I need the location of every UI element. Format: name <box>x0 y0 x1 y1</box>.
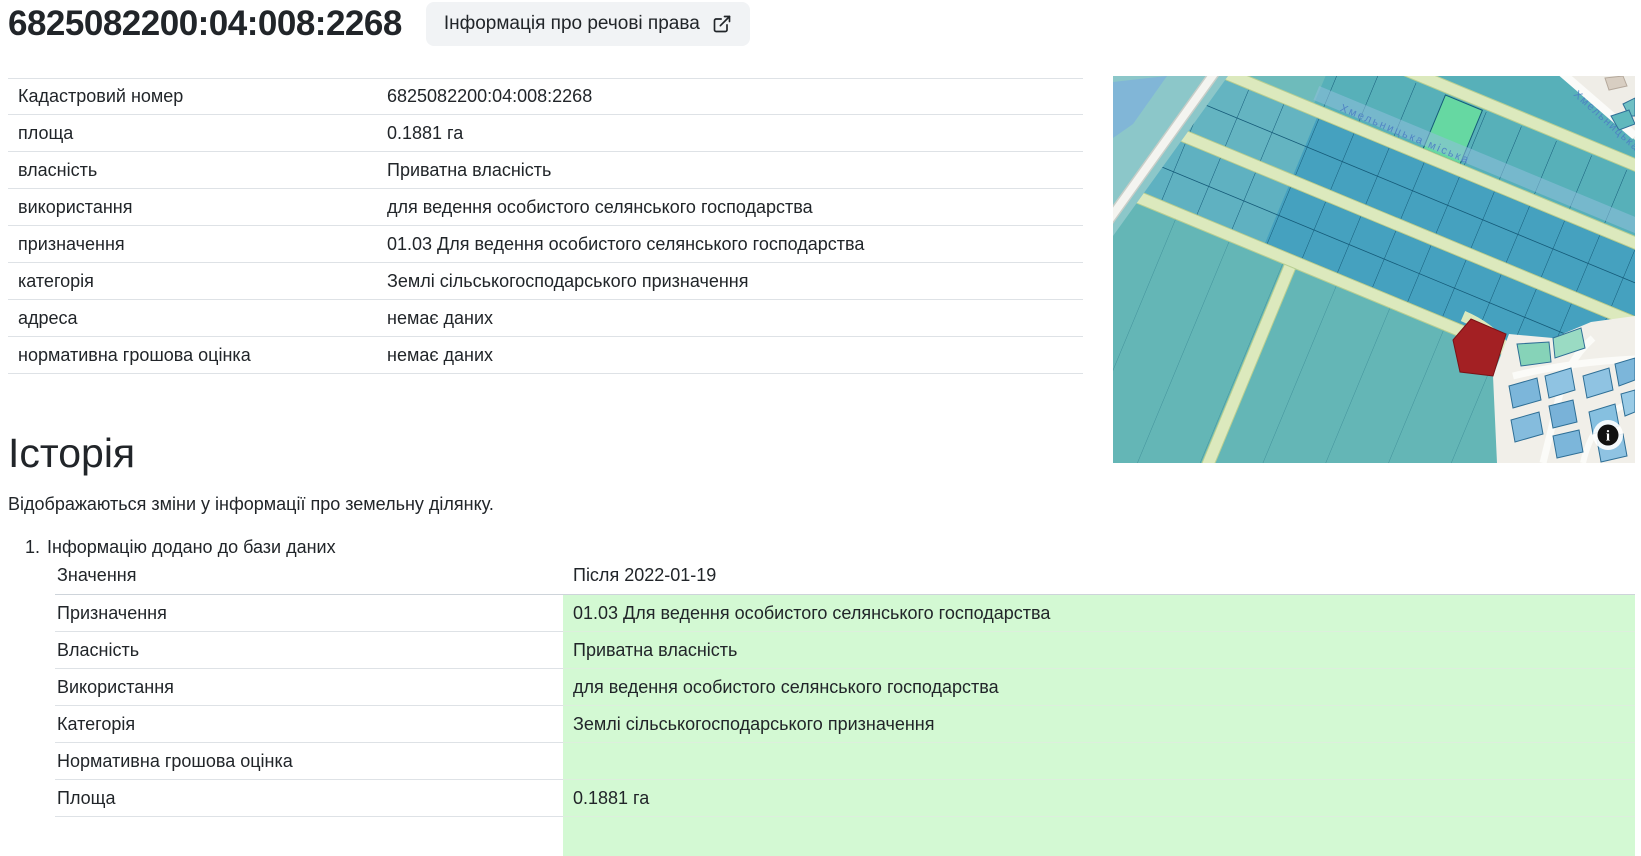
row-label: Призначення <box>55 594 563 631</box>
row-value: Землі сільськогосподарського призначення <box>563 705 1635 742</box>
page: { "page": { "title": "6825082200:04:008:… <box>0 0 1641 856</box>
info-icon[interactable]: i <box>1593 420 1623 450</box>
row-label: Використання <box>55 668 563 705</box>
history-row: Призначення 01.03 Для ведення особистого… <box>55 594 1635 631</box>
row-label: площа <box>8 123 377 144</box>
row-value: 0.1881 га <box>377 123 1083 144</box>
row-value: Приватна власність <box>377 160 1083 181</box>
history-row: Використання для ведення особистого селя… <box>55 668 1635 705</box>
row-value: Приватна власність <box>563 631 1635 668</box>
row-label: адреса <box>8 308 377 329</box>
history-row-partial <box>55 816 1635 856</box>
property-rights-button[interactable]: Інформація про речові права <box>426 2 750 46</box>
history-table-body: Призначення 01.03 Для ведення особистого… <box>55 594 1635 816</box>
row-label: Нормативна грошова оцінка <box>55 742 563 779</box>
table-row: Кадастровий номер 6825082200:04:008:2268 <box>8 78 1083 115</box>
row-label: категорія <box>8 271 377 292</box>
table-row: площа 0.1881 га <box>8 115 1083 152</box>
external-link-icon <box>712 14 732 34</box>
row-value: 0.1881 га <box>563 779 1635 816</box>
row-label <box>55 816 563 856</box>
event-title-text: Інформацію додано до бази даних <box>47 537 336 558</box>
date-column-header: Після 2022-01-19 <box>563 556 1635 594</box>
table-row: використання для ведення особистого селя… <box>8 189 1083 226</box>
row-value: для ведення особистого селянського госпо… <box>563 668 1635 705</box>
row-value <box>563 742 1635 779</box>
history-event-title: 1. Інформацію додано до бази даних <box>25 537 336 558</box>
row-value: 01.03 Для ведення особистого селянського… <box>377 234 1083 255</box>
value-column-header: Значення <box>55 556 563 594</box>
table-row: призначення 01.03 Для ведення особистого… <box>8 226 1083 263</box>
page-title: 6825082200:04:008:2268 <box>8 4 402 44</box>
parcel-table: Кадастровий номер 6825082200:04:008:2268… <box>8 78 1083 374</box>
row-value: Землі сільськогосподарського призначення <box>377 271 1083 292</box>
row-value <box>563 816 1635 856</box>
row-value: немає даних <box>377 308 1083 329</box>
row-label: власність <box>8 160 377 181</box>
history-table-header: Значення Після 2022-01-19 <box>55 556 1635 594</box>
history-row: Категорія Землі сільськогосподарського п… <box>55 705 1635 742</box>
table-row: адреса немає даних <box>8 300 1083 337</box>
cadastral-map[interactable]: Хмельницька міська <box>1113 76 1635 463</box>
row-value: немає даних <box>377 345 1083 366</box>
row-label: Категорія <box>55 705 563 742</box>
table-row: власність Приватна власність <box>8 152 1083 189</box>
row-label: Власність <box>55 631 563 668</box>
table-row: нормативна грошова оцінка немає даних <box>8 337 1083 374</box>
history-row: Нормативна грошова оцінка <box>55 742 1635 779</box>
property-rights-button-label: Інформація про речові права <box>444 13 700 35</box>
row-value: для ведення особистого селянського госпо… <box>377 197 1083 218</box>
row-label: Площа <box>55 779 563 816</box>
row-label: Кадастровий номер <box>8 86 377 107</box>
history-description: Відображаються зміни у інформації про зе… <box>8 494 494 515</box>
history-row: Власність Приватна власність <box>55 631 1635 668</box>
table-row: категорія Землі сільськогосподарського п… <box>8 263 1083 300</box>
history-heading: Історія <box>8 430 135 477</box>
history-row: Площа 0.1881 га <box>55 779 1635 816</box>
svg-text:i: i <box>1606 429 1610 445</box>
history-table: Значення Після 2022-01-19 Призначення 01… <box>55 556 1635 856</box>
row-label: використання <box>8 197 377 218</box>
row-label: призначення <box>8 234 377 255</box>
event-number: 1. <box>25 537 40 558</box>
row-label: нормативна грошова оцінка <box>8 345 377 366</box>
row-value: 01.03 Для ведення особистого селянського… <box>563 594 1635 631</box>
header: 6825082200:04:008:2268 Інформація про ре… <box>8 2 750 46</box>
row-value: 6825082200:04:008:2268 <box>377 86 1083 107</box>
